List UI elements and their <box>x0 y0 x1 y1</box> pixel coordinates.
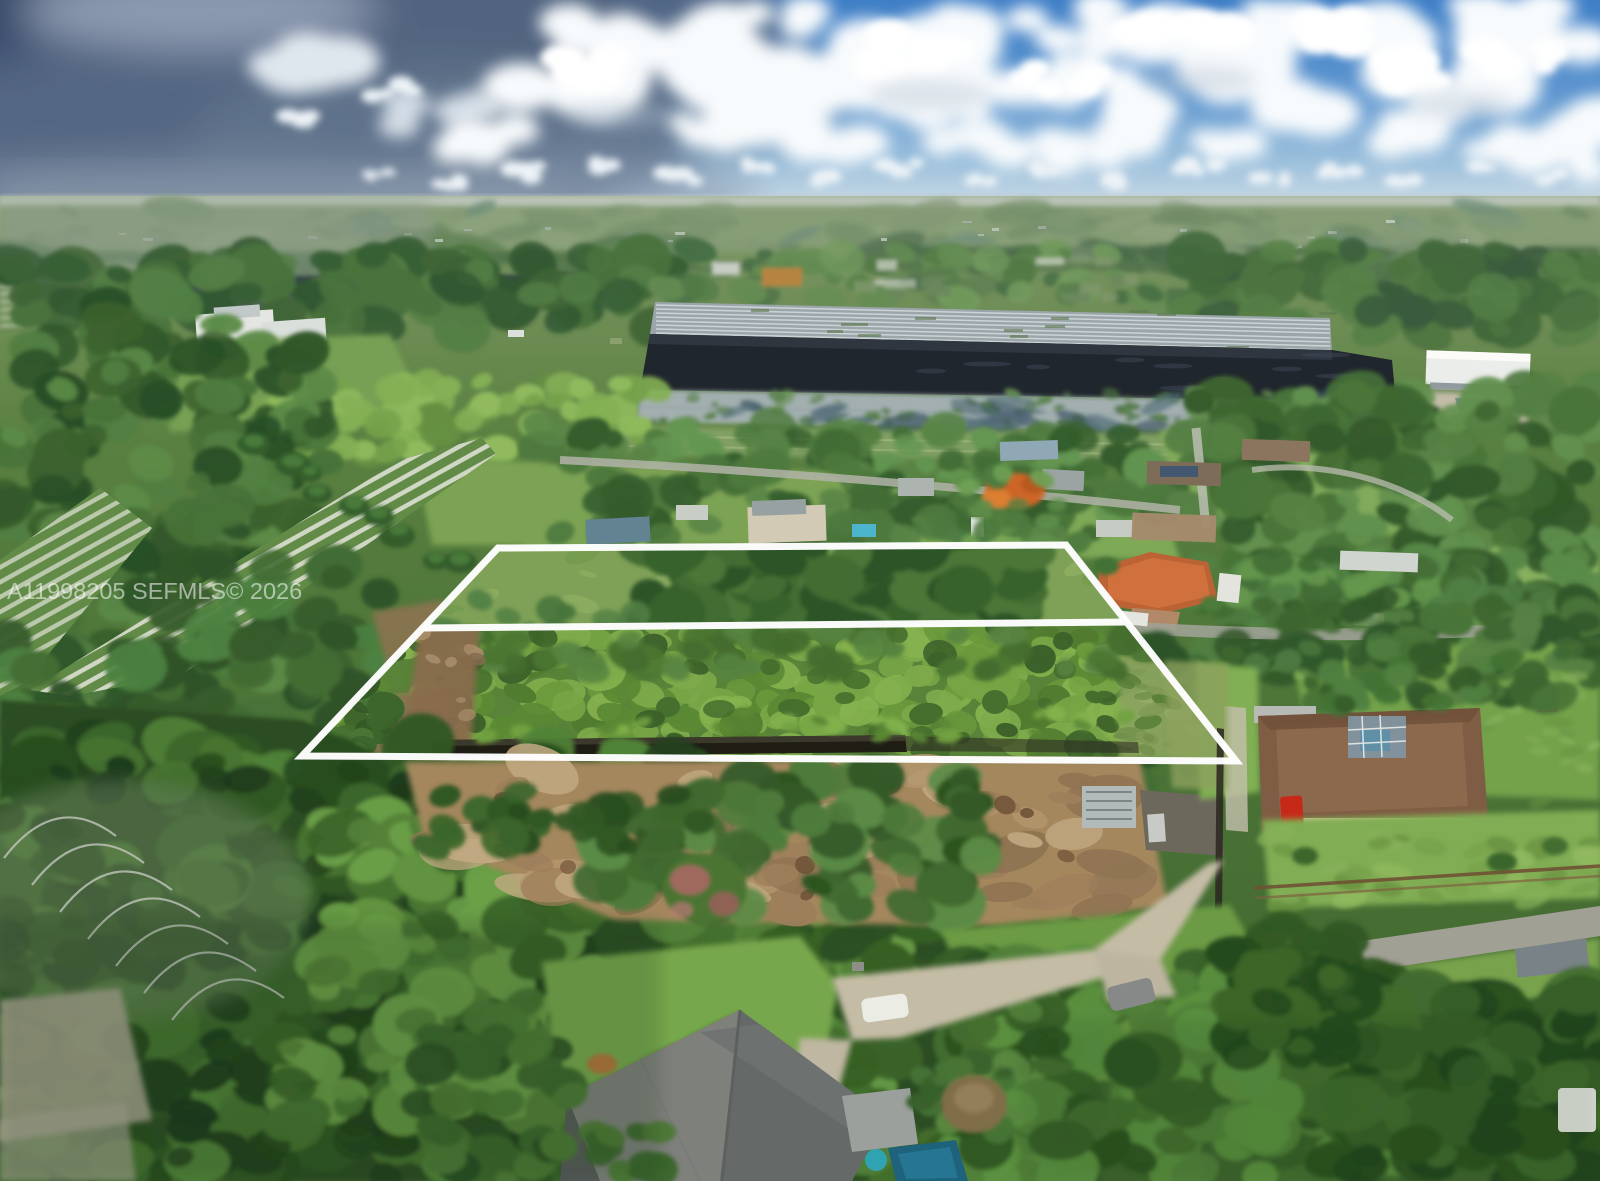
svg-text:A11998205 SEFMLS© 2026: A11998205 SEFMLS© 2026 <box>7 578 302 604</box>
